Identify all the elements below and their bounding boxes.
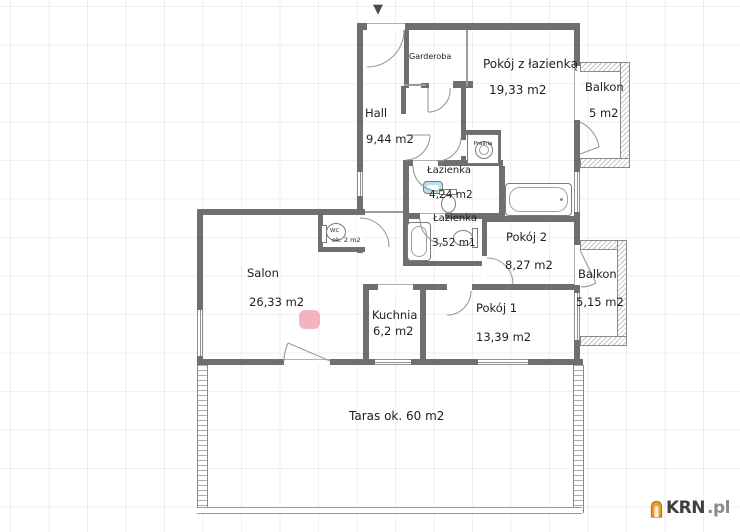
room-area-kuchnia: 6,2 m2 [373,325,413,338]
room-label-taras: Taras ok. 60 m2 [349,410,444,423]
bathtub [505,183,572,216]
room-label-garderoba: Garderoba [409,53,451,62]
room-label-pokoj-1: Pokój 1 [476,302,517,315]
balcony-wall [580,158,630,168]
room-area-lazienka-1: 4,24 m2 [429,190,473,202]
room-area-pokoj-z-lazienka: 19,33 m2 [489,84,547,97]
bath-alcove-window [574,172,580,212]
shower-tub [407,222,431,261]
room-label-hall: Hall [365,107,387,120]
shower-tub-inner [411,226,427,257]
room1-terrace-window [478,359,528,365]
salon-window [197,310,203,356]
room-area-lazienka-2: 3,52 m1 [432,238,476,250]
wall-segment [401,86,406,114]
krn-house-icon [649,499,664,518]
krn-logo-tld: .pl [707,498,730,518]
wall-segment [405,23,580,30]
salon-terrace-window [375,359,411,365]
room-area-pokoj-2: 8,27 m2 [505,259,553,272]
room-label-balkon-gorny: Balkon [585,81,624,94]
room-label-kuchnia: Kuchnia [372,309,417,322]
taras-area: ok. 60 m2 [384,409,444,423]
entrance-door-opening [367,23,405,30]
room-label-lazienka-1: Łazienka [427,165,471,176]
wall-segment [357,247,363,253]
wardrobe-partition-line [404,84,426,86]
hall-window [357,172,363,196]
room-label-balkon-dolny: Balkon [578,268,617,281]
room-area-pokoj-1: 13,39 m2 [476,331,531,344]
balcony-wall [580,336,627,346]
wall-segment [420,284,426,365]
entrance-arrow-icon: ▼ [373,2,383,17]
room2-door-opening [482,256,487,284]
bathtub-drain [560,198,563,201]
wall-segment [461,130,466,140]
corridor-line [365,211,403,213]
krn-logo[interactable]: KRN.pl [649,498,730,518]
balcony-door-opening [574,66,580,120]
balcony-wall [617,240,627,346]
wall-segment [453,81,473,88]
room-label-pokoj-z-lazienka: Pokój z łazienką [483,58,578,71]
wall-segment [403,261,487,266]
terrace-railing [197,507,582,514]
balcony-wall [620,62,630,168]
wall-segment [197,209,365,215]
room1-door-opening [447,284,472,290]
floor-plan: ▼ [0,0,740,532]
room-label-lazienka-2: Łazienka [433,213,477,224]
room-area-balkon-gorny: 5 m2 [589,107,619,120]
terrace-railing [573,365,584,513]
room-area-hall: 9,44 m2 [366,133,414,146]
wall-segment [482,216,580,222]
terrace-door-opening [284,359,330,365]
wardrobe-partition-line [466,30,468,86]
terrace-railing [197,365,208,513]
room-area-salon: 26,33 m2 [249,296,304,309]
washing-machine [467,134,499,164]
room-label-pokoj-2: Pokój 2 [506,231,547,244]
room-label-pralnia: Pralnia [467,141,499,147]
kitchen-opening [378,284,413,290]
krn-logo-text: KRN [666,498,705,518]
salon-pink-marker [299,310,320,329]
room-label-salon: Salon [247,267,279,280]
laundry-door-opening [461,140,466,156]
wall-segment [461,86,466,133]
room-label-wc: WC [330,228,339,234]
wall-segment [363,284,369,365]
taras-name: Taras [349,409,380,423]
room-area-balkon-dolny: 5,15 m2 [576,296,624,309]
room-area-wc: ok. 2 m2 [332,237,361,244]
